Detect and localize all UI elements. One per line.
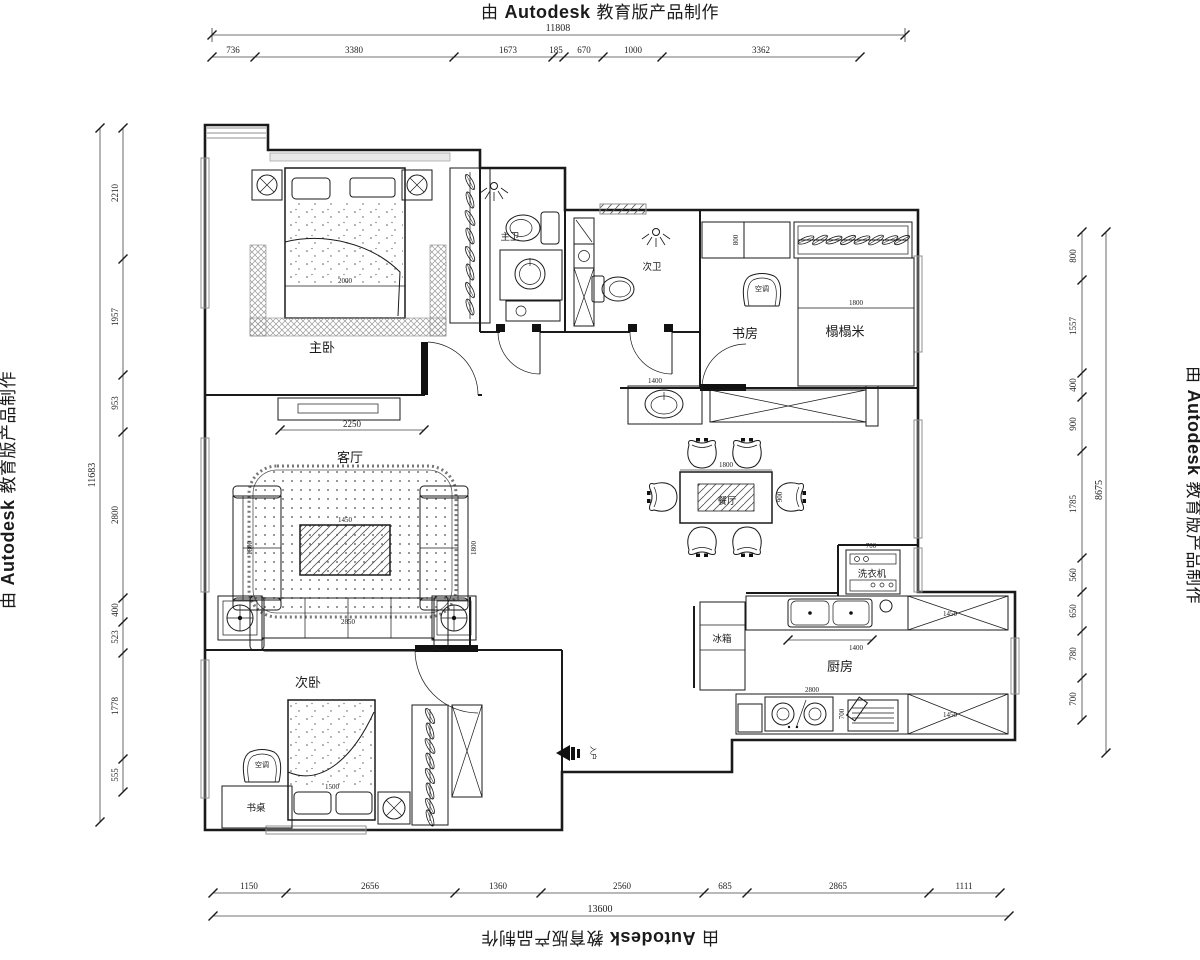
- door-master-bedroom: [421, 342, 478, 395]
- dim-study-cabinet: 800: [732, 234, 740, 245]
- dim-bottom-seg: 2865: [829, 881, 848, 891]
- dim-stove-counter: 2800: [805, 686, 820, 694]
- coffee-table: 1450: [300, 516, 390, 575]
- bay-window-glazing: [207, 128, 266, 138]
- dim-right-seg: 1557: [1068, 317, 1078, 336]
- room-kitchen: 冰箱 1400 1450 1450 厨房 2800 700: [700, 596, 1008, 734]
- dim-left-seg: 400: [110, 603, 120, 617]
- window-bath2-top: [600, 204, 646, 214]
- desk: 书桌: [222, 786, 292, 828]
- dim-right-seg: 650: [1068, 604, 1078, 618]
- ac-label: 空调: [755, 284, 769, 293]
- dim-left-seg: 1957: [110, 308, 120, 327]
- window-bedroom2-bottom: [266, 826, 366, 834]
- toilet-icon: [592, 276, 634, 302]
- dim-washer: 700: [866, 542, 877, 550]
- room-label-study: 书房: [732, 326, 758, 341]
- dim-right-seg: 700: [1068, 692, 1078, 706]
- window-dining-right: [914, 420, 922, 538]
- entry-label: 入户: [589, 746, 598, 760]
- dim-top-seg: 736: [226, 45, 240, 55]
- room-label-living: 客厅: [337, 450, 363, 465]
- fridge-label: 冰箱: [712, 633, 731, 645]
- door-bedroom2: [415, 645, 478, 713]
- hallway-dining: 1400 1800 900 餐厅 入户: [556, 377, 878, 761]
- watermark-bottom: 由Autodesk教育版产品制作: [481, 928, 719, 948]
- dim-left-seg: 523: [110, 630, 120, 644]
- bath-cabinet-column: [574, 218, 594, 326]
- ac-unit-icon: 空调: [743, 274, 780, 307]
- dim-bottom-seg: 2656: [361, 881, 380, 891]
- dim-left-seg: 2210: [110, 184, 120, 203]
- dimension-chain-left: 11683 2210 1957 953 2800 400 523 1778 55…: [87, 124, 128, 827]
- door-master-bath: [496, 324, 541, 374]
- dim-top-seg: 3362: [752, 45, 770, 55]
- dim-right-seg: 560: [1068, 568, 1078, 582]
- closet-hangers: [794, 222, 912, 258]
- window-sill-master: [270, 153, 450, 161]
- cabinet-x-lower: 1450: [908, 694, 1008, 734]
- room-second-bedroom: 次卧 1500 书桌 空调: [222, 675, 482, 828]
- room-label-second-bath: 次卫: [642, 261, 662, 273]
- cabinet-x-bedroom2: [452, 705, 482, 797]
- dim-sofa-left: 1800: [246, 541, 254, 556]
- dim-master-bed: 2000: [338, 277, 353, 285]
- dim-right-seg: 780: [1068, 647, 1078, 661]
- dim-left-seg: 2800: [110, 506, 120, 525]
- dim-left-seg: 555: [110, 768, 120, 782]
- wall-lamp-icon: [480, 183, 508, 202]
- room-label-tatami: 榻榻米: [825, 324, 864, 339]
- watermark-left: 由Autodesk教育版产品制作: [0, 371, 18, 609]
- washer-label: 洗衣机: [858, 568, 887, 580]
- room-living: 2250 客厅 1450 1800 1800 2850: [218, 398, 478, 651]
- shower-icon: [642, 229, 670, 248]
- dim-right-total: 8675: [1094, 480, 1105, 500]
- room-label-kitchen: 厨房: [827, 659, 853, 674]
- dim-top-seg: 185: [549, 45, 563, 55]
- room-label-master-bath: 主卫: [500, 231, 520, 243]
- dim-tv-wall: 2250: [343, 419, 362, 429]
- room-tatami: 1800 榻榻米: [794, 222, 914, 386]
- dim-cabinet-lower: 1450: [943, 711, 958, 719]
- room-label-second-bedroom: 次卧: [295, 675, 321, 690]
- room-label-master-bedroom: 主卧: [309, 340, 335, 355]
- dimension-chain-bottom: 1150 2656 1360 2560 685 2865 1111 13600: [209, 881, 1014, 921]
- dim-left-total: 11683: [87, 463, 98, 488]
- dim-bed2-pillow: 1500: [325, 783, 340, 791]
- ceiling-fixture-icon: [378, 792, 410, 824]
- dim-top-seg: 3380: [345, 45, 364, 55]
- sink-counter: 1400: [746, 596, 908, 652]
- dim-cabinet-upper: 1450: [943, 610, 958, 618]
- dimension-chain-right: 800 1557 400 900 1785 560 650 780 700 86…: [1068, 228, 1111, 758]
- desk-label: 书桌: [246, 802, 266, 814]
- dim-right-seg: 1785: [1068, 495, 1078, 514]
- window-kitchen-right: [1011, 638, 1019, 694]
- dim-top-seg: 670: [577, 45, 591, 55]
- small-cabinet: [738, 704, 762, 732]
- window-master-left: [201, 158, 209, 308]
- ac-unit-icon: 空调: [243, 750, 280, 783]
- dim-bottom-seg: 685: [718, 881, 732, 891]
- wardrobe-master: [450, 168, 490, 323]
- dim-sink: 1400: [849, 644, 864, 652]
- dim-left-seg: 953: [110, 396, 120, 410]
- tv-console: [278, 398, 400, 420]
- doors: [415, 324, 746, 713]
- window-tatami-right: [914, 256, 922, 352]
- ceiling-fixture-icon: [402, 170, 432, 200]
- dim-tatami: 1800: [849, 299, 864, 307]
- dim-bottom-seg: 1111: [956, 881, 973, 891]
- watermark-right: 由Autodesk教育版产品制作: [1184, 366, 1200, 604]
- mop-basin: [506, 301, 560, 321]
- window-bedroom2-left: [201, 660, 209, 798]
- side-table-icon: [218, 596, 262, 640]
- vanity-basin: [500, 250, 562, 300]
- dim-top-seg: 1000: [624, 45, 643, 55]
- wardrobe-bedroom2: [412, 705, 448, 827]
- window-washer-right: [914, 548, 922, 592]
- room-second-bath: 次卫: [574, 218, 670, 326]
- dim-coffee-table: 1450: [338, 516, 353, 524]
- bed-master: 2000: [285, 168, 405, 318]
- floor-plan-svg: 由Autodesk教育版产品制作 由Autodesk教育版产品制作 由Autod…: [0, 0, 1200, 960]
- cabinet-x-upper: 1450: [908, 596, 1008, 630]
- dim-top-total: 11808: [546, 23, 571, 34]
- room-study: 800 空调 书房: [702, 222, 790, 341]
- dim-sofa-right: 1800: [470, 541, 478, 556]
- room-label-dining: 餐厅: [717, 495, 737, 507]
- washer-nook: 700 洗衣机: [846, 542, 900, 594]
- dim-hall-cabinet: 1400: [648, 377, 663, 385]
- door-study: [700, 344, 746, 391]
- dining-table: 1800 900 餐厅: [647, 438, 806, 557]
- dim-stove-depth: 700: [838, 708, 846, 719]
- hall-cabinet-x: [710, 386, 878, 426]
- bed-second: 1500: [288, 700, 375, 820]
- dim-right-seg: 800: [1068, 249, 1078, 263]
- dim-top-seg: 1673: [499, 45, 518, 55]
- ceiling-fixture-icon: [252, 170, 282, 200]
- dim-dining-width: 900: [776, 491, 784, 502]
- hall-vanity: 1400: [628, 377, 702, 424]
- room-master-bath: 主卫: [480, 183, 562, 322]
- dim-bottom-seg: 1150: [240, 881, 258, 891]
- dim-sofa-long: 2850: [341, 618, 356, 626]
- dim-bottom-seg: 1360: [489, 881, 508, 891]
- dimension-chain-top: 11808 736 3380 1673 185 670 1000 3362: [208, 23, 910, 62]
- cutting-board: [847, 697, 898, 731]
- window-living-left: [201, 438, 209, 592]
- stove-counter: 2800 700: [736, 686, 908, 734]
- dim-right-seg: 900: [1068, 417, 1078, 431]
- door-second-bath: [628, 324, 673, 374]
- ac-label: 空调: [255, 760, 269, 769]
- room-master-bedroom: 2000 主卧: [250, 168, 490, 355]
- dim-bottom-total: 13600: [588, 904, 613, 915]
- watermark-top: 由Autodesk教育版产品制作: [481, 2, 719, 22]
- dim-right-seg: 400: [1068, 378, 1078, 392]
- dim-bottom-seg: 2560: [613, 881, 632, 891]
- dim-dining-length: 1800: [719, 461, 734, 469]
- dim-left-seg: 1778: [110, 697, 120, 716]
- fridge: 冰箱: [700, 602, 745, 690]
